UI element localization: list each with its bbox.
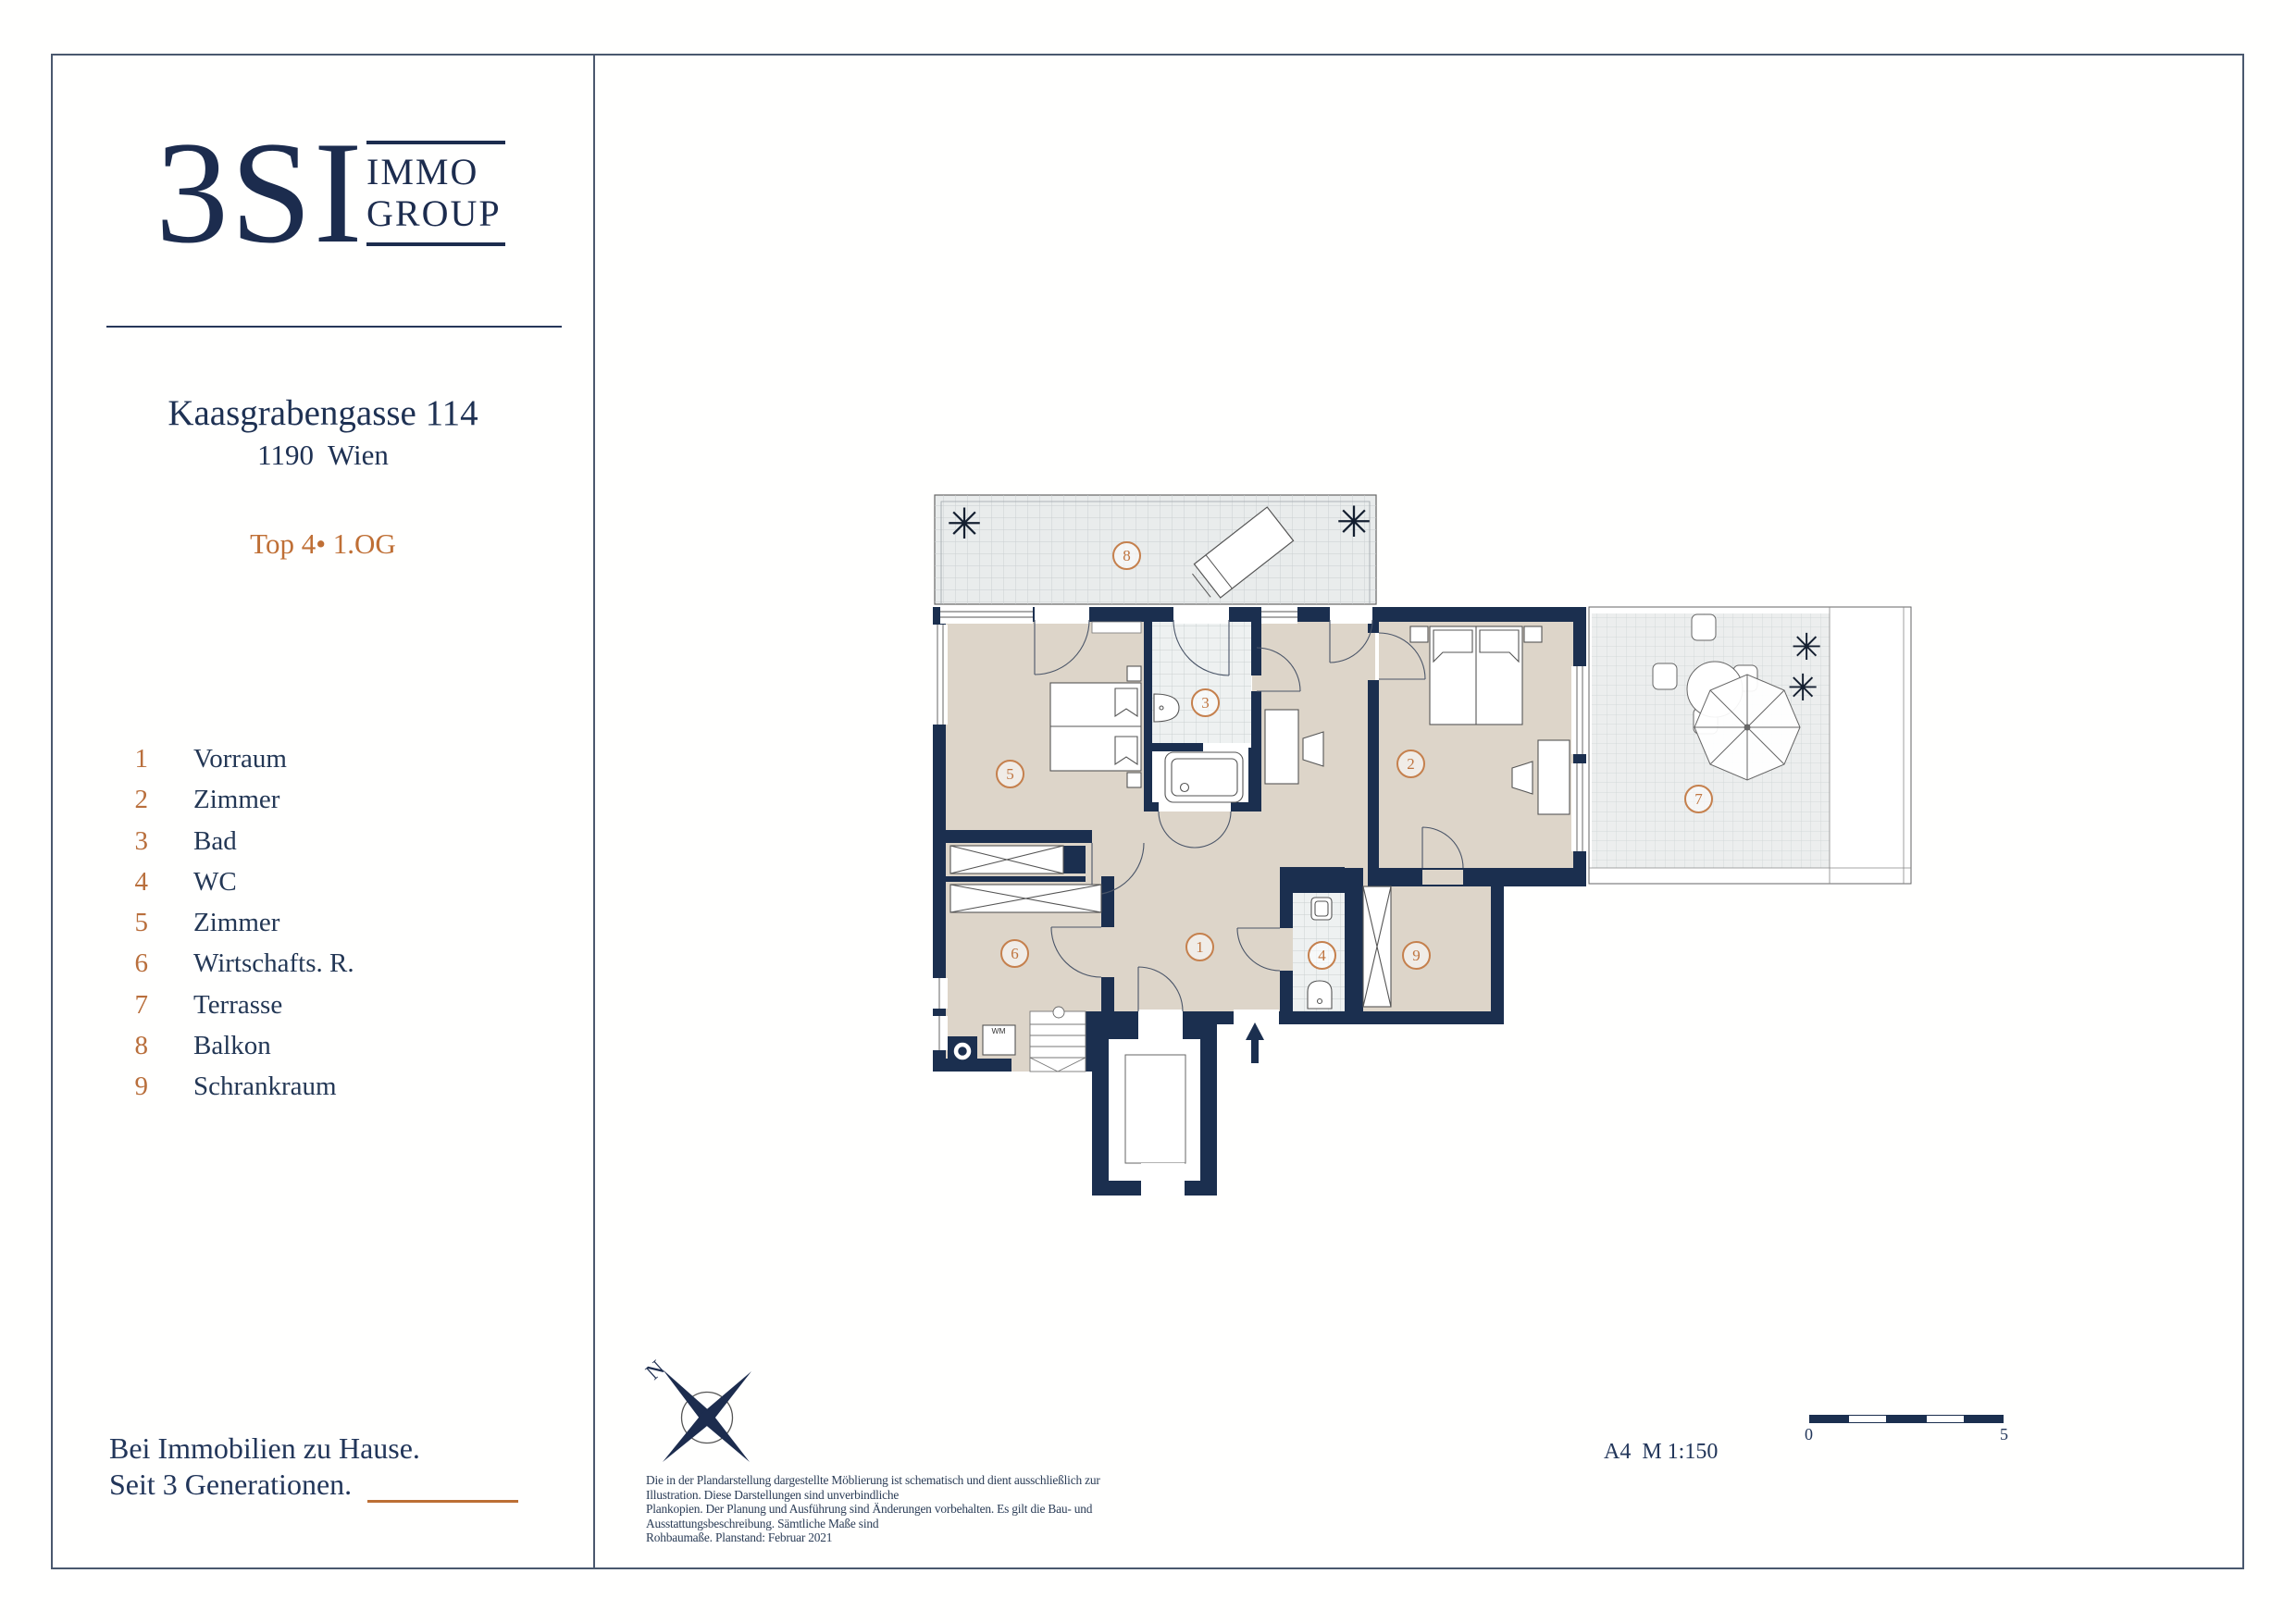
brand-logo: 3SI xyxy=(155,120,365,266)
legend-row: 4WC xyxy=(104,867,354,908)
room-label-4: 4 xyxy=(1308,941,1336,970)
disclaimer-line: Die in der Plandarstellung dargestellte … xyxy=(646,1473,1109,1502)
room-label-7: 7 xyxy=(1684,785,1713,813)
scale-start: 0 xyxy=(1805,1425,1813,1444)
room-label-3: 3 xyxy=(1191,688,1220,717)
legend-num: 4 xyxy=(104,867,148,898)
scale-bar: 0 5 xyxy=(1809,1415,2004,1423)
legend-num: 1 xyxy=(104,744,148,774)
room-label-8: 8 xyxy=(1112,541,1141,570)
tagline-line2: Seit 3 Generationen. xyxy=(109,1467,420,1503)
room-legend: 1Vorraum 2Zimmer 3Bad 4WC 5Zimmer 6Wirts… xyxy=(104,744,354,1113)
legend-label: Terrasse xyxy=(193,990,282,1021)
legend-row: 8Balkon xyxy=(104,1031,354,1072)
room-label-1: 1 xyxy=(1185,933,1214,961)
tagline-accent-line xyxy=(367,1500,518,1503)
stairs xyxy=(1030,1007,1086,1072)
legend-label: Zimmer xyxy=(193,908,279,938)
legend-row: 3Bad xyxy=(104,826,354,867)
legend-num: 3 xyxy=(104,826,148,857)
legend-row: 2Zimmer xyxy=(104,785,354,825)
plant-icon: ✳ xyxy=(1336,497,1372,547)
bed-room5 xyxy=(1050,666,1141,787)
legend-num: 8 xyxy=(104,1031,148,1061)
floorplan-drawing: ✳ ✳ ✳ ✳ xyxy=(907,481,2054,1240)
legend-label: Bad xyxy=(193,826,237,857)
brand-group: GROUP xyxy=(366,193,505,235)
legend-num: 5 xyxy=(104,908,148,938)
chair-nook xyxy=(1303,732,1323,766)
brand-logo-subtitle: IMMO GROUP xyxy=(366,141,505,246)
room-label-6: 6 xyxy=(1000,939,1029,968)
balcony: ✳ ✳ xyxy=(935,495,1376,604)
scale-end: 5 xyxy=(2000,1425,2008,1444)
legend-label: Vorraum xyxy=(193,744,287,774)
disclaimer-line: Rohbaumaße. Planstand: Februar 2021 xyxy=(646,1530,1109,1545)
desk-room2 xyxy=(1538,740,1570,814)
room-label-5: 5 xyxy=(996,760,1024,788)
brand-tagline: Bei Immobilien zu Hause. Seit 3 Generati… xyxy=(109,1431,420,1503)
project-city: 1190 Wien xyxy=(51,439,595,472)
bed-room2 xyxy=(1410,626,1542,725)
logo-divider xyxy=(106,326,562,328)
legend-label: Balkon xyxy=(193,1031,271,1061)
legend-row: 6Wirtschafts. R. xyxy=(104,948,354,989)
plant-icon: ✳ xyxy=(1787,667,1818,710)
floorplan-sheet: 3SI IMMO GROUP Kaasgrabengasse 114 1190 … xyxy=(0,0,2296,1623)
legend-label: Zimmer xyxy=(193,785,279,815)
parasol xyxy=(1694,675,1800,780)
legend-row: 1Vorraum xyxy=(104,744,354,785)
legend-row: 7Terrasse xyxy=(104,990,354,1031)
legend-num: 9 xyxy=(104,1072,148,1102)
legend-label: Schrankraum xyxy=(193,1072,337,1102)
toilet xyxy=(1308,981,1332,1009)
legend-row: 5Zimmer xyxy=(104,908,354,948)
terrace-chair xyxy=(1692,614,1716,640)
terrace-chair xyxy=(1653,663,1677,689)
legend-num: 6 xyxy=(104,948,148,979)
entrance-arrow-icon xyxy=(1246,1022,1264,1063)
legend-num: 7 xyxy=(104,990,148,1021)
unit-title: Top 4• 1.OG xyxy=(51,527,595,561)
sheet-scale-text: A4 M 1:150 xyxy=(1604,1440,1718,1465)
project-address: Kaasgrabengasse 114 xyxy=(51,392,595,434)
terrace: ✳ ✳ xyxy=(1589,607,1911,884)
legend-label: WC xyxy=(193,867,237,898)
legend-label: Wirtschafts. R. xyxy=(193,948,354,979)
washing-machine-label: WM xyxy=(991,1026,1005,1035)
legend-row: 9Schrankraum xyxy=(104,1072,354,1112)
plant-icon: ✳ xyxy=(1791,626,1822,669)
tagline-line1: Bei Immobilien zu Hause. xyxy=(109,1431,420,1467)
disclaimer: Die in der Plandarstellung dargestellte … xyxy=(646,1473,1109,1545)
desk-nook xyxy=(1265,710,1298,784)
disclaimer-line: Plankopien. Der Planung und Ausführung s… xyxy=(646,1502,1109,1530)
room-label-2: 2 xyxy=(1396,750,1425,778)
room-label-9: 9 xyxy=(1402,941,1431,970)
panel-divider xyxy=(593,54,595,1567)
legend-num: 2 xyxy=(104,785,148,815)
brand-immo: IMMO xyxy=(366,152,505,193)
plant-icon: ✳ xyxy=(947,499,983,549)
